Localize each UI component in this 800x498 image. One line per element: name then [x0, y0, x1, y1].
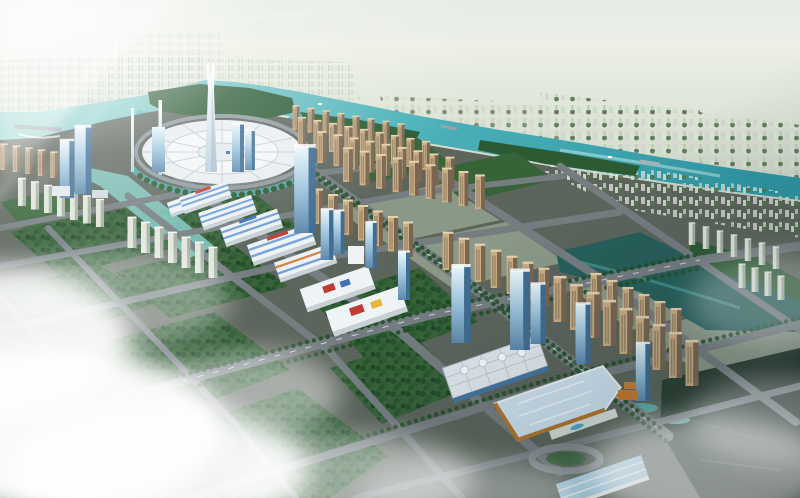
glare-wash	[0, 0, 800, 498]
sun-glare	[0, 0, 800, 498]
aerial-city-rendering	[0, 0, 800, 498]
rendering-canvas	[0, 0, 800, 498]
